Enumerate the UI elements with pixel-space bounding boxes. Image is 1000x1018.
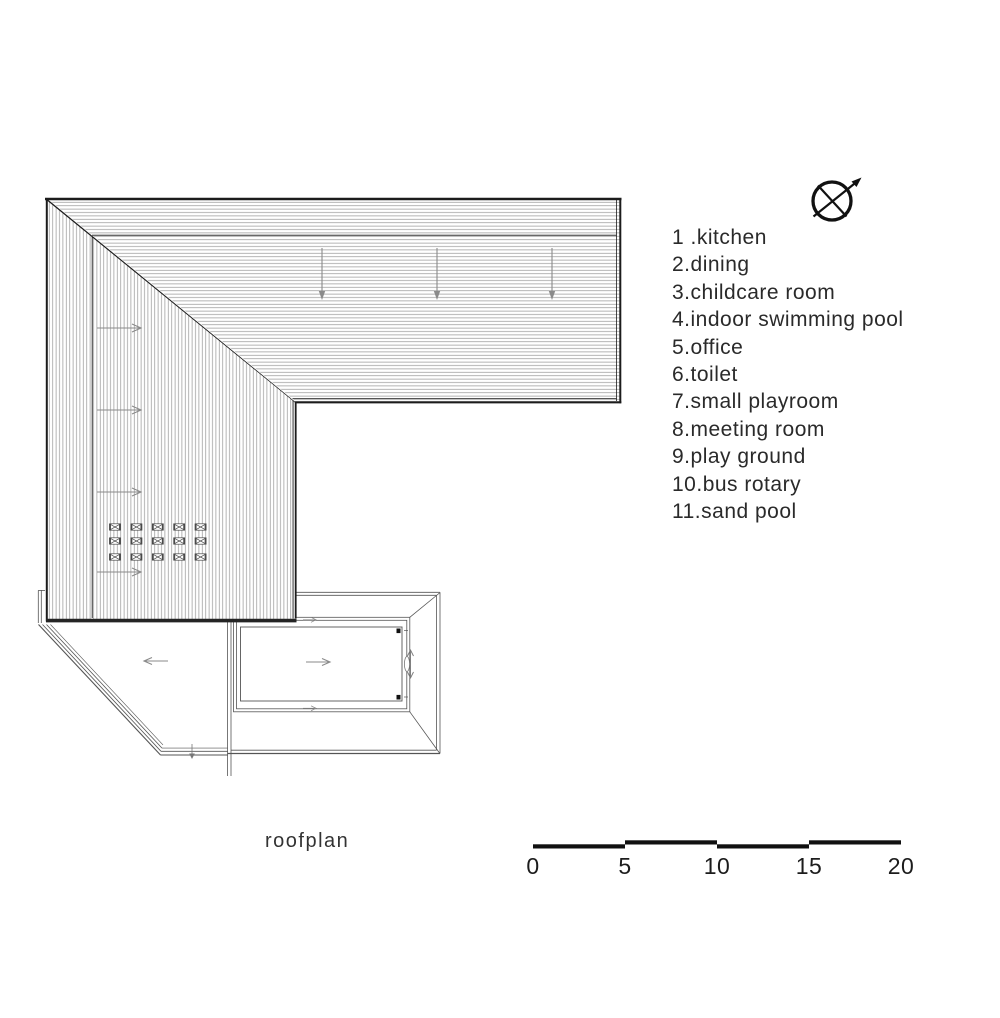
scale-tick-label: 20 xyxy=(879,853,923,880)
roofplan-page: 1 .kitchen 2.dining 3.childcare room 4.i… xyxy=(0,0,1000,1018)
legend-item: 2.dining xyxy=(672,251,904,278)
pool-slope-arrow xyxy=(306,659,330,666)
legend-item: 5.office xyxy=(672,334,904,361)
legend-item: 10.bus rotary xyxy=(672,471,904,498)
legend-item: 6.toilet xyxy=(672,361,904,388)
scale-tick-label: 5 xyxy=(603,853,647,880)
legend-item: 3.childcare room xyxy=(672,279,904,306)
drawing-caption: roofplan xyxy=(265,830,349,853)
legend-item: 9.play ground xyxy=(672,443,904,470)
legend-item: 11.sand pool xyxy=(672,498,904,525)
legend-item: 1 .kitchen xyxy=(672,224,904,251)
legend: 1 .kitchen 2.dining 3.childcare room 4.i… xyxy=(672,224,904,525)
scale-bar xyxy=(533,840,901,848)
scale-tick-label: 15 xyxy=(787,853,831,880)
legend-item: 8.meeting room xyxy=(672,416,904,443)
scale-tick-label: 10 xyxy=(695,853,739,880)
legend-item: 7.small playroom xyxy=(672,388,904,415)
scale-tick-label: 0 xyxy=(511,853,555,880)
terrace-slope-arrow xyxy=(144,658,168,665)
legend-item: 4.indoor swimming pool xyxy=(672,306,904,333)
north-arrow-icon xyxy=(813,178,862,221)
